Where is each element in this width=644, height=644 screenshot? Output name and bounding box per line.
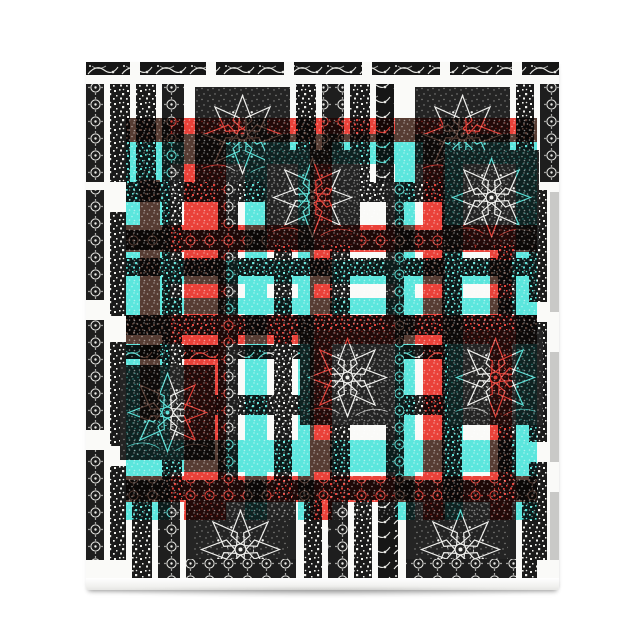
speckle-highlights <box>126 118 537 520</box>
pad-drop-shadow <box>100 586 550 598</box>
product-photo <box>0 0 644 644</box>
notepad <box>86 62 559 590</box>
notepad-cover-pattern <box>86 62 559 578</box>
